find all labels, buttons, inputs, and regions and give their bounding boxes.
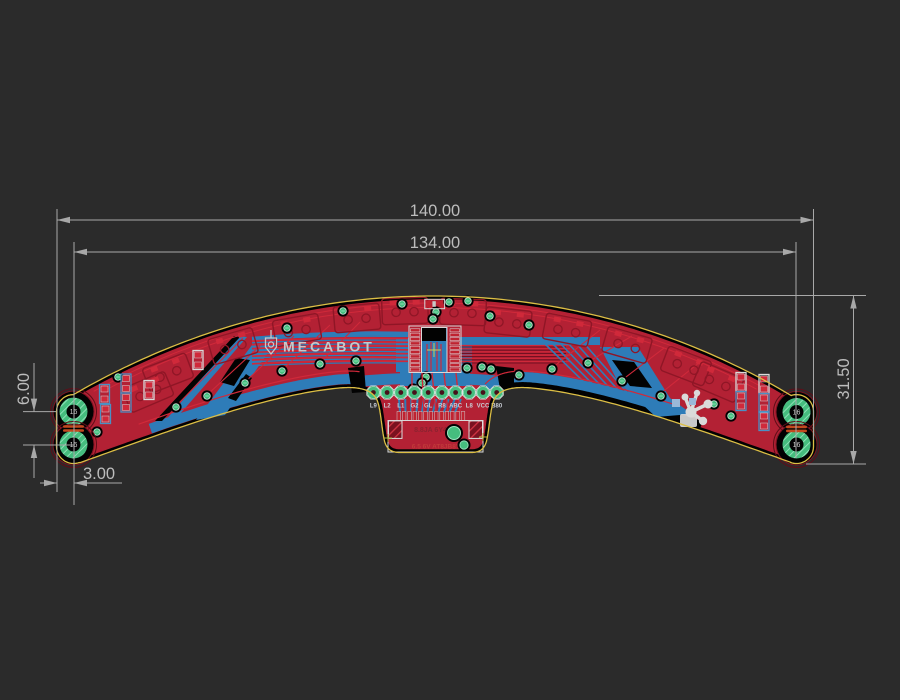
svg-text:L2: L2 bbox=[384, 404, 392, 410]
svg-text:16: 16 bbox=[793, 442, 801, 449]
svg-text:L1: L1 bbox=[397, 404, 405, 410]
svg-text:16: 16 bbox=[793, 410, 801, 417]
svg-text:VCC: VCC bbox=[477, 404, 490, 410]
svg-text:R8: R8 bbox=[438, 404, 446, 410]
svg-text:GL: GL bbox=[424, 404, 433, 410]
svg-text:6.00: 6.00 bbox=[15, 373, 33, 405]
svg-text:134.00: 134.00 bbox=[410, 234, 460, 252]
svg-text:L9: L9 bbox=[370, 404, 378, 410]
svg-text:G2: G2 bbox=[410, 404, 419, 410]
svg-text:3.00: 3.00 bbox=[83, 465, 115, 483]
svg-text:31.50: 31.50 bbox=[835, 358, 853, 399]
svg-text:L8: L8 bbox=[466, 404, 474, 410]
svg-text:MECABOT: MECABOT bbox=[283, 339, 375, 355]
svg-text:140.00: 140.00 bbox=[410, 202, 460, 220]
svg-text:ABC: ABC bbox=[449, 404, 463, 410]
svg-text:6.5 6V AT8JB8Y: 6.5 6V AT8JB8Y bbox=[412, 444, 461, 451]
